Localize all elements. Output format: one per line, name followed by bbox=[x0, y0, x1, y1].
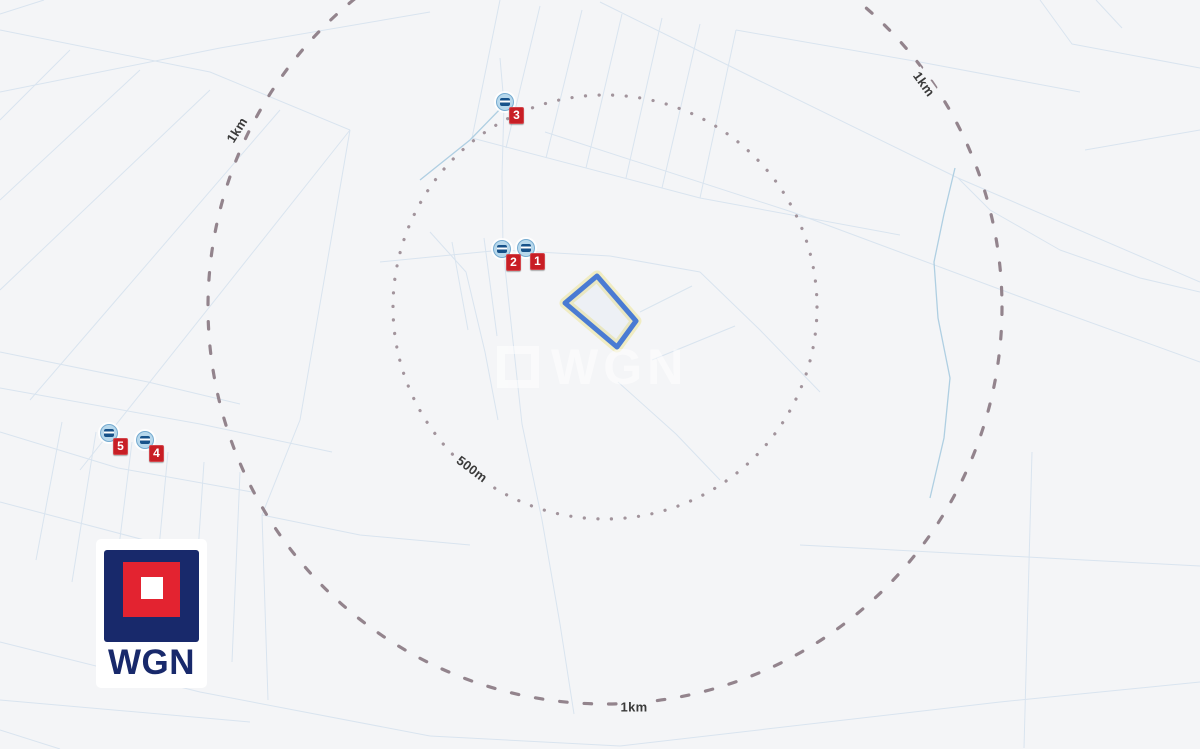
wgn-logo-mark-icon bbox=[104, 550, 199, 642]
wgn-logo-white-square bbox=[141, 577, 163, 599]
building-glyph-icon bbox=[521, 244, 531, 252]
marker-number-badge: 4 bbox=[149, 445, 164, 462]
building-glyph-icon bbox=[104, 429, 114, 437]
marker-number-badge: 3 bbox=[509, 107, 524, 124]
stream-lines bbox=[420, 104, 955, 498]
wgn-logo-text: WGN bbox=[104, 645, 199, 680]
marker-number-badge: 2 bbox=[506, 254, 521, 271]
plot-outline bbox=[565, 276, 636, 347]
wgn-logo: WGN bbox=[96, 539, 207, 688]
building-glyph-icon bbox=[500, 98, 510, 106]
marker-number-badge: 5 bbox=[113, 438, 128, 455]
building-glyph-icon bbox=[497, 245, 507, 253]
wgn-logo-card: WGN bbox=[96, 539, 207, 688]
map-canvas[interactable]: WGN 1km 1km 500m 1km 1 2 3 4 5 WGN bbox=[0, 0, 1200, 749]
marker-number-badge: 1 bbox=[530, 253, 545, 270]
ring-label-1km-bottom: 1km bbox=[618, 700, 651, 715]
building-glyph-icon bbox=[140, 436, 150, 444]
radius-ring-1km bbox=[208, 0, 1002, 704]
wgn-logo-red-square bbox=[123, 562, 180, 617]
